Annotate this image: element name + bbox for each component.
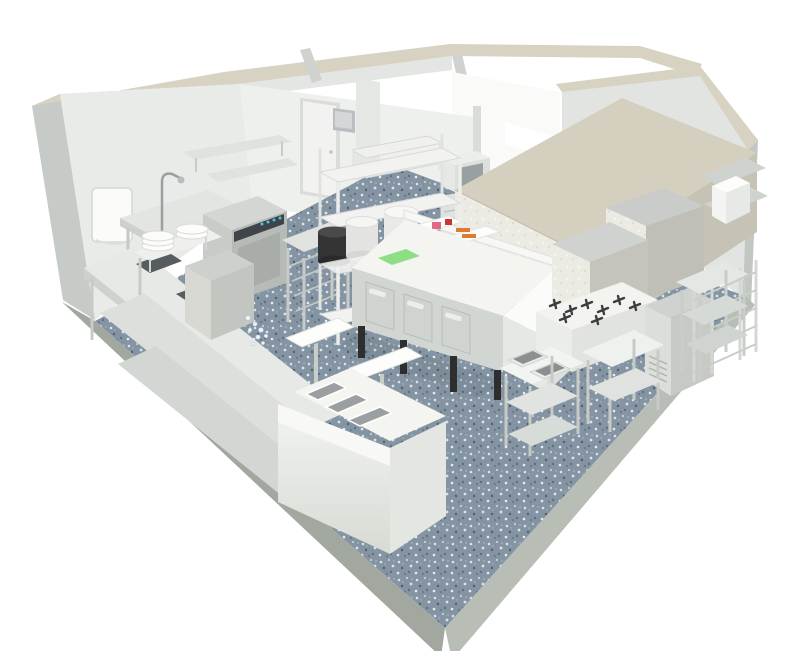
paper-towel-dispenser	[92, 188, 132, 244]
ingredient-carrot	[462, 234, 476, 238]
ingredient-carrot	[456, 228, 470, 232]
ingredient-pink	[432, 222, 441, 229]
ingredient-red	[445, 219, 452, 225]
plate-stack	[142, 231, 174, 251]
render-canvas	[0, 0, 800, 651]
control-box	[333, 108, 355, 133]
kitchen-3d-render	[0, 0, 800, 651]
plate-stack	[176, 224, 208, 239]
door-handle	[329, 150, 332, 153]
